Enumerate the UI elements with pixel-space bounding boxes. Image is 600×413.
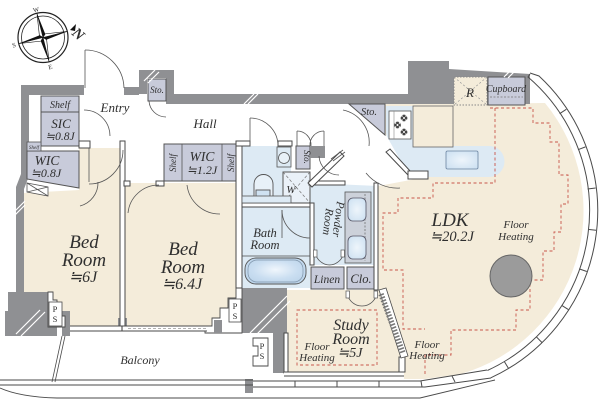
svg-text:Cupboard: Cupboard bbox=[486, 84, 527, 95]
svg-text:≒6.4J: ≒6.4J bbox=[162, 276, 203, 293]
svg-text:Shelf: Shelf bbox=[226, 153, 236, 172]
svg-text:Sto.: Sto. bbox=[302, 150, 312, 164]
svg-text:LDK: LDK bbox=[431, 210, 470, 231]
svg-text:≒0.8J: ≒0.8J bbox=[31, 166, 62, 180]
svg-text:Shelf: Shelf bbox=[168, 153, 178, 172]
svg-text:Clo.: Clo. bbox=[350, 272, 371, 286]
svg-text:W: W bbox=[286, 184, 296, 196]
svg-text:Shelf: Shelf bbox=[50, 100, 71, 111]
svg-text:S: S bbox=[233, 311, 238, 321]
svg-text:Room: Room bbox=[160, 257, 205, 278]
svg-text:≒0.8J: ≒0.8J bbox=[45, 131, 75, 143]
svg-text:WIC: WIC bbox=[190, 149, 216, 164]
svg-text:Shelf: Shelf bbox=[29, 146, 40, 151]
svg-text:≒20.2J: ≒20.2J bbox=[430, 229, 475, 245]
svg-text:Sto.: Sto. bbox=[361, 107, 377, 118]
svg-text:≒5J: ≒5J bbox=[338, 346, 364, 361]
svg-text:R: R bbox=[465, 85, 474, 100]
svg-text:Sto.: Sto. bbox=[150, 85, 164, 95]
svg-text:S: S bbox=[53, 314, 58, 324]
svg-text:Floor: Floor bbox=[502, 219, 529, 231]
svg-text:Linen: Linen bbox=[313, 274, 340, 286]
svg-text:≒6J: ≒6J bbox=[69, 269, 98, 286]
svg-text:P: P bbox=[53, 304, 58, 314]
svg-text:Entry: Entry bbox=[100, 100, 130, 115]
svg-text:P: P bbox=[233, 301, 238, 311]
svg-text:Heating: Heating bbox=[298, 352, 335, 364]
svg-text:Room: Room bbox=[249, 238, 279, 252]
svg-text:SIC: SIC bbox=[51, 116, 71, 131]
svg-text:Heating: Heating bbox=[497, 231, 534, 243]
svg-text:Balcony: Balcony bbox=[120, 353, 160, 367]
svg-text:S: S bbox=[260, 351, 265, 361]
svg-text:P: P bbox=[260, 341, 265, 351]
svg-text:Hall: Hall bbox=[192, 116, 217, 131]
svg-text:Room: Room bbox=[61, 250, 106, 271]
svg-text:Heating: Heating bbox=[408, 350, 445, 362]
svg-text:≒1.2J: ≒1.2J bbox=[187, 163, 218, 177]
